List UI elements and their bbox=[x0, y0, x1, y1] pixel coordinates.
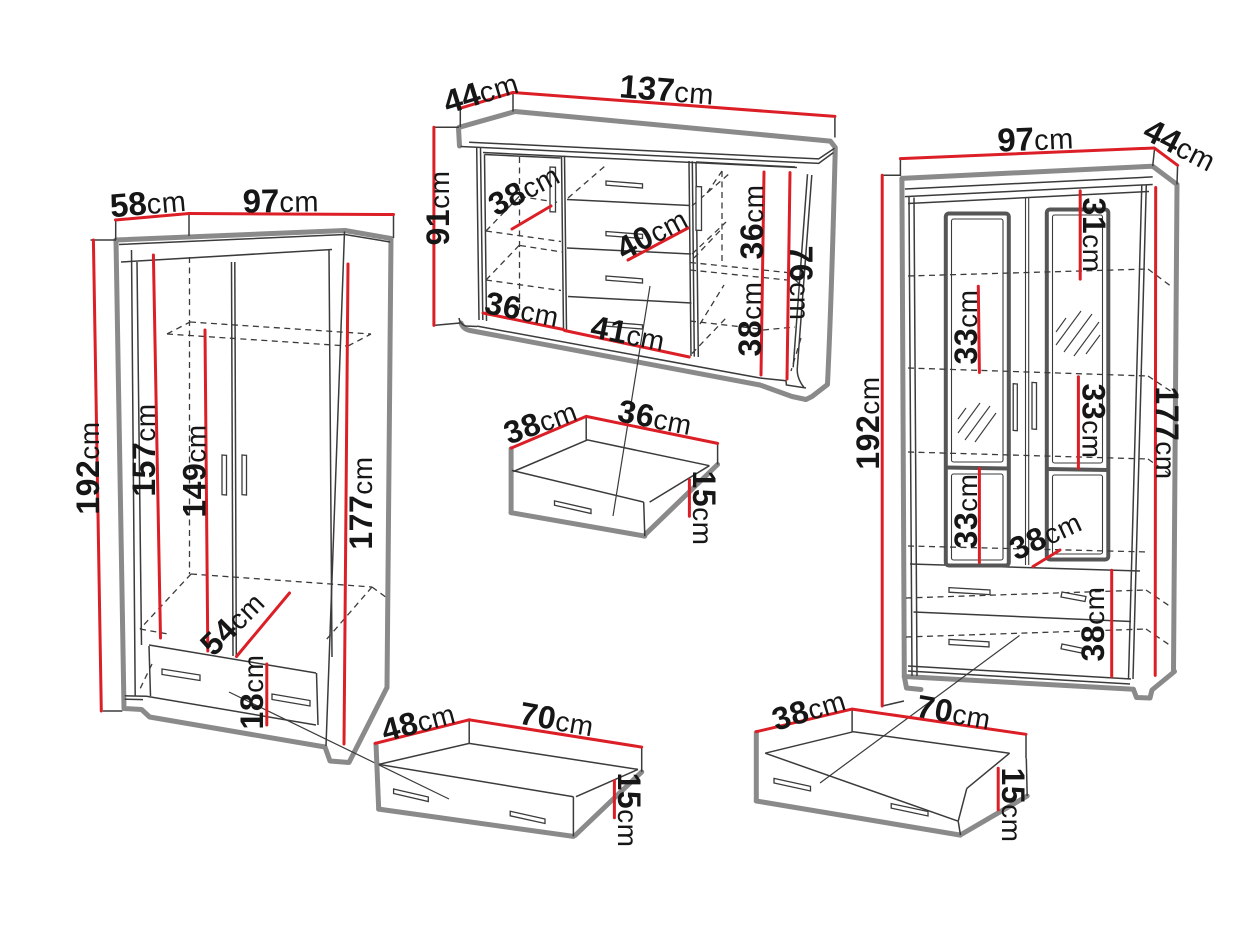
svg-text:97cm: 97cm bbox=[997, 118, 1075, 158]
svg-text:18cm: 18cm bbox=[234, 655, 270, 730]
svg-text:15cm: 15cm bbox=[686, 471, 722, 546]
svg-text:91cm: 91cm bbox=[420, 171, 456, 246]
svg-text:36cm: 36cm bbox=[734, 185, 770, 260]
svg-text:149cm: 149cm bbox=[177, 424, 213, 517]
svg-text:38cm: 38cm bbox=[732, 282, 768, 357]
svg-text:192cm: 192cm bbox=[70, 421, 106, 514]
svg-text:76cm: 76cm bbox=[783, 246, 819, 321]
svg-text:192cm: 192cm bbox=[850, 376, 886, 469]
svg-text:157cm: 157cm bbox=[126, 403, 162, 496]
svg-text:97cm: 97cm bbox=[242, 181, 319, 219]
svg-text:15cm: 15cm bbox=[611, 773, 647, 848]
svg-text:177cm: 177cm bbox=[343, 456, 379, 549]
svg-text:33cm: 33cm bbox=[948, 290, 984, 365]
svg-text:38cm: 38cm bbox=[1075, 587, 1111, 662]
svg-text:33cm: 33cm bbox=[948, 474, 984, 549]
svg-text:31cm: 31cm bbox=[1076, 198, 1112, 273]
svg-text:177cm: 177cm bbox=[1149, 386, 1185, 479]
svg-text:15cm: 15cm bbox=[995, 768, 1031, 843]
svg-text:33cm: 33cm bbox=[1076, 384, 1112, 459]
